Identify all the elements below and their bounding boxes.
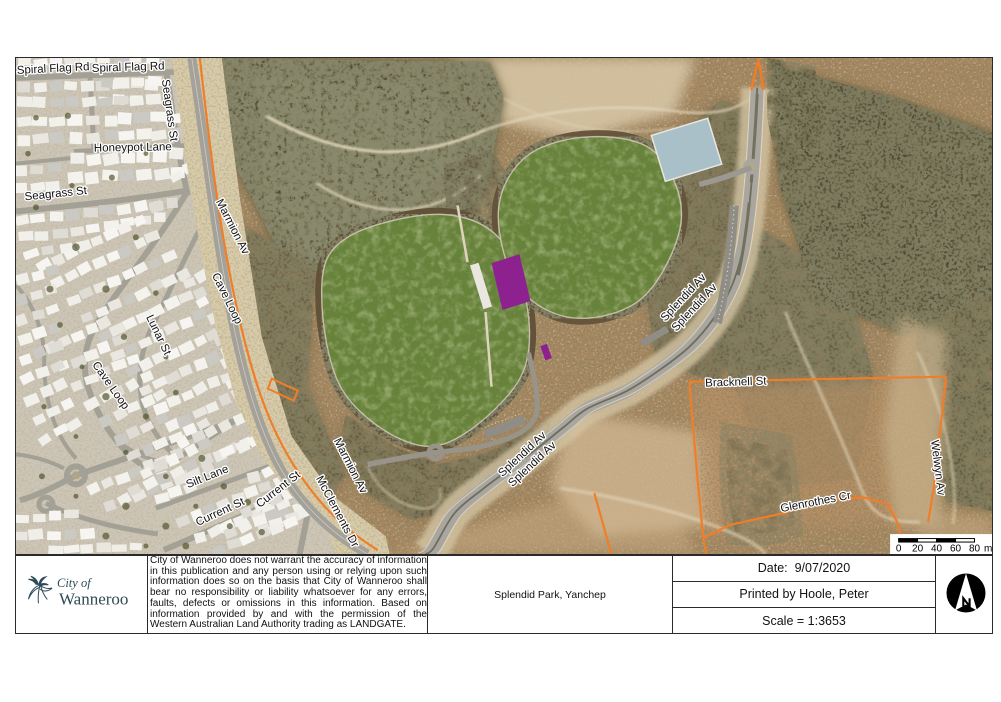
svg-text:Spiral Flag Rd: Spiral Flag Rd <box>92 60 165 75</box>
svg-text:Bracknell St: Bracknell St <box>705 376 767 390</box>
svg-text:Wanneroo: Wanneroo <box>59 590 128 609</box>
svg-text:20: 20 <box>912 544 924 554</box>
svg-text:80: 80 <box>969 544 981 554</box>
svg-text:City of: City of <box>57 576 92 590</box>
svg-text:Honeypot Lane: Honeypot Lane <box>94 141 172 154</box>
svg-text:40: 40 <box>931 544 943 554</box>
svg-text:0: 0 <box>896 544 902 554</box>
svg-text:m: m <box>984 544 992 554</box>
svg-text:60: 60 <box>950 544 962 554</box>
